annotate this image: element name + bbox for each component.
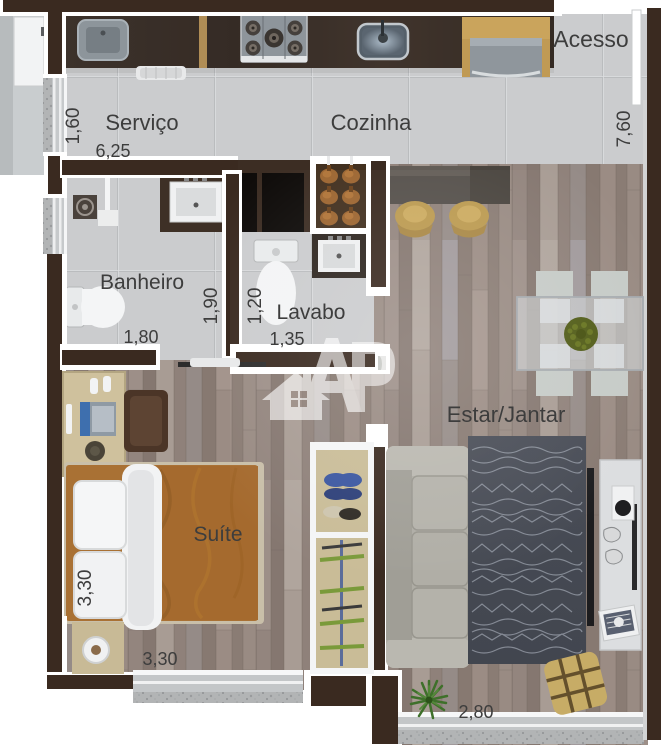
- svg-text:Serviço: Serviço: [105, 110, 178, 135]
- svg-text:7,60: 7,60: [614, 111, 635, 148]
- svg-text:Estar/Jantar: Estar/Jantar: [447, 402, 566, 427]
- svg-text:Acesso: Acesso: [553, 26, 628, 52]
- svg-text:3,30: 3,30: [142, 649, 177, 669]
- svg-text:6,25: 6,25: [95, 141, 130, 161]
- svg-text:3,30: 3,30: [75, 570, 96, 607]
- svg-text:Lavabo: Lavabo: [277, 301, 346, 324]
- svg-text:Banheiro: Banheiro: [100, 271, 184, 294]
- svg-text:1,90: 1,90: [201, 288, 222, 325]
- svg-text:1,35: 1,35: [269, 329, 304, 349]
- svg-text:1,20: 1,20: [245, 288, 266, 325]
- svg-text:Cozinha: Cozinha: [331, 110, 412, 135]
- svg-text:1,80: 1,80: [123, 327, 158, 347]
- svg-text:1,60: 1,60: [63, 108, 84, 145]
- svg-text:2,80: 2,80: [458, 702, 493, 722]
- svg-text:Suíte: Suíte: [193, 523, 242, 546]
